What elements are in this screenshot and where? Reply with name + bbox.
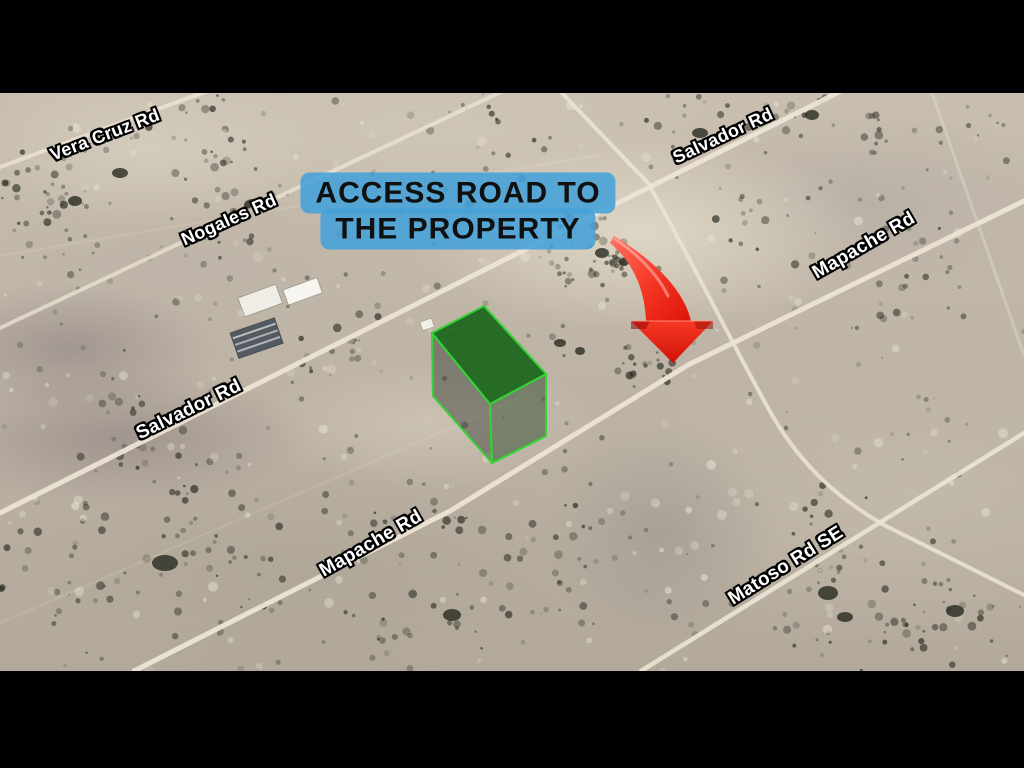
satellite-map-view[interactable]: Vera Cruz Rd Nogales Rd Salvador Rd Mapa… — [0, 93, 1024, 671]
track-line-faint-2 — [0, 398, 520, 623]
road-line-vera-cruz-faint — [190, 93, 330, 98]
direction-arrow — [610, 236, 713, 363]
listing-image-stage: Vera Cruz Rd Nogales Rd Salvador Rd Mapa… — [0, 0, 1024, 768]
access-road-callout-line2: THE PROPERTY — [320, 209, 595, 250]
arrow-wing-shade-right — [694, 321, 713, 329]
letterbox-bar-bottom — [0, 671, 1024, 768]
road-line-mapache — [134, 201, 1024, 671]
building-white-shed-1 — [283, 278, 322, 305]
building-white-shed-2 — [238, 284, 282, 316]
road-line-salvador — [0, 93, 845, 513]
road-line-right-faint — [932, 93, 1024, 355]
arrow-body — [610, 236, 691, 321]
road-line-matoso — [641, 433, 1024, 671]
access-road-callout: ACCESS ROAD TO THE PROPERTY — [300, 173, 615, 250]
building-small-shed — [420, 318, 434, 330]
letterbox-bar-top — [0, 0, 1024, 93]
property-parcel-3d — [432, 306, 546, 463]
access-road-callout-line1: ACCESS ROAD TO — [300, 173, 615, 214]
road-line-access — [562, 93, 1024, 595]
